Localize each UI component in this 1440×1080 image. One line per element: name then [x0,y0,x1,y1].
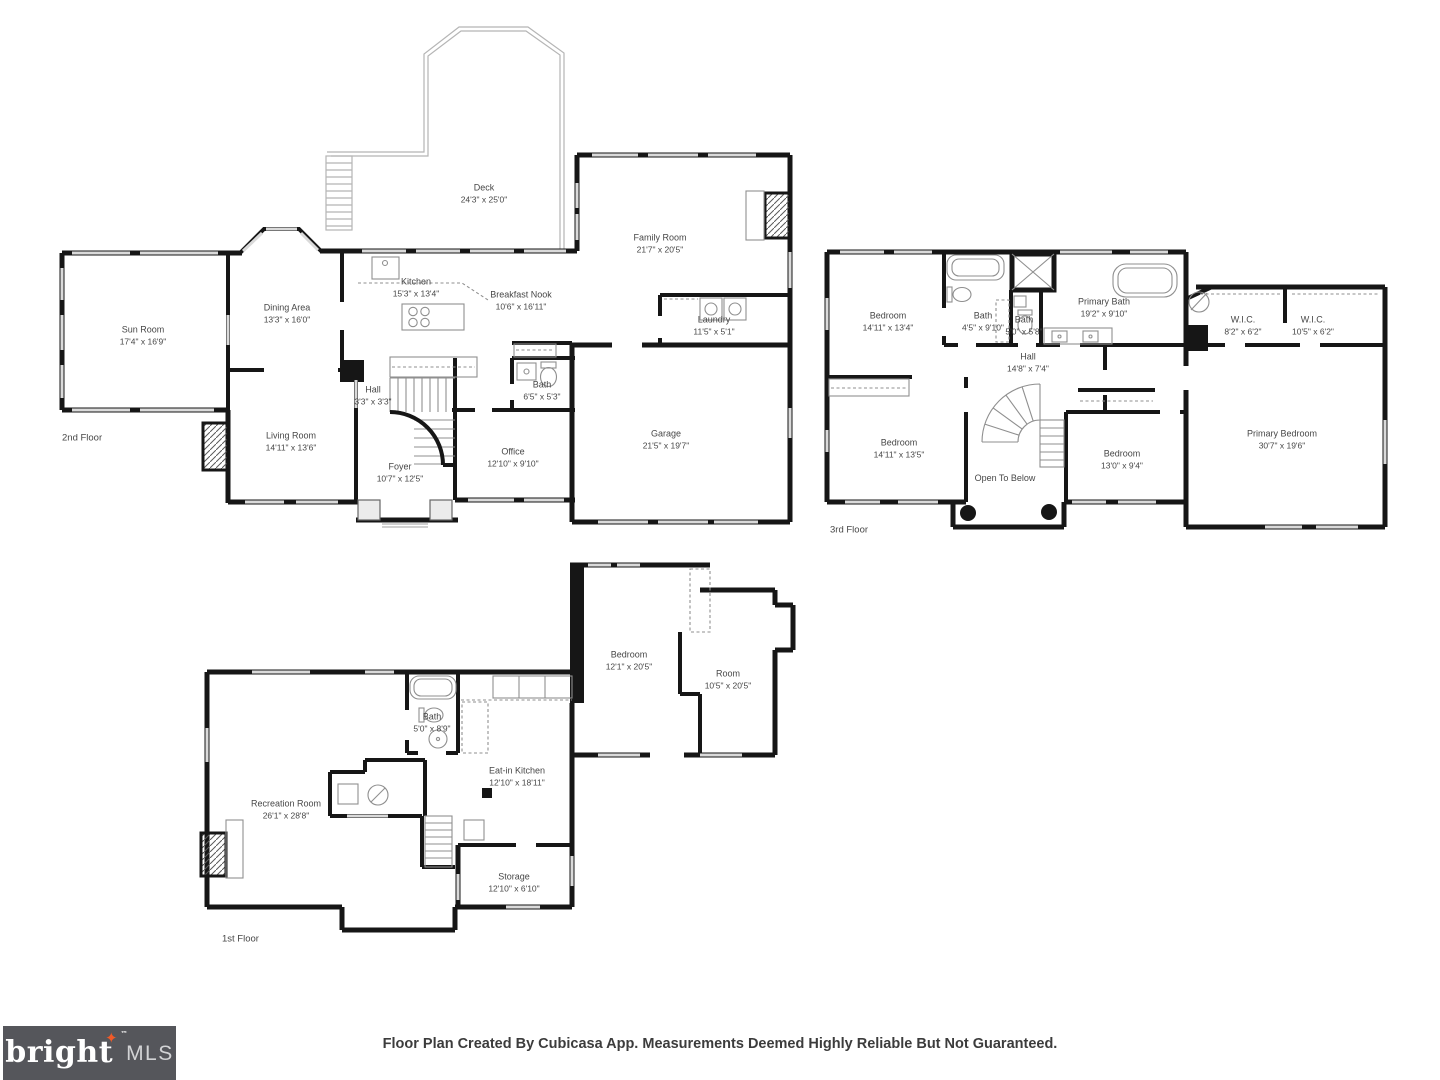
room-dimensions: 17'4" x 16'9" [120,336,167,347]
room-label: Bath5'0" x 5'8" [1005,314,1042,337]
room-name: Bedroom [863,310,914,322]
room-dimensions: 11'5" x 5'1" [693,326,734,337]
room-name: Bath [523,379,560,391]
room-name: Bath [1005,314,1042,326]
room-name: Garage [643,428,690,440]
room-dimensions: 5'0" x 8'9" [413,723,450,734]
room-label: W.I.C.10'5" x 6'2" [1292,314,1334,337]
room-labels-layer: Sun Room17'4" x 16'9"Dining Area13'3" x … [0,0,1440,1080]
room-dimensions: 21'7" x 20'5" [633,244,686,255]
room-label: Bedroom14'11" x 13'4" [863,310,914,333]
room-name: Bedroom [874,437,925,449]
room-label: W.I.C.8'2" x 6'2" [1224,314,1261,337]
room-name: Bath [413,711,450,723]
room-dimensions: 12'10" x 18'11" [489,777,545,788]
room-name: Breakfast Nook [490,289,552,301]
room-label: Recreation Room26'1" x 28'8" [251,798,321,821]
room-label: Dining Area13'3" x 16'0" [264,302,311,325]
room-label: Bedroom12'1" x 20'5" [606,649,653,672]
room-name: Family Room [633,232,686,244]
floor-caption-first-floor: 1st Floor [222,934,259,945]
room-dimensions: 6'5" x 5'3" [523,391,560,402]
room-label: Breakfast Nook10'6" x 16'11" [490,289,552,312]
room-name: Sun Room [120,324,167,336]
room-label: Bath4'5" x 9'10" [962,310,1004,333]
room-dimensions: 14'11" x 13'5" [874,449,925,460]
room-dimensions: 19'2" x 9'10" [1078,308,1130,319]
room-label: Laundry11'5" x 5'1" [693,314,734,337]
room-name: Foyer [377,461,424,473]
room-name: Primary Bath [1078,296,1130,308]
room-label: Storage12'10" x 6'10" [488,871,539,894]
room-dimensions: 26'1" x 28'8" [251,810,321,821]
room-label: Primary Bedroom30'7" x 19'6" [1247,428,1317,451]
room-name: Office [487,446,538,458]
room-name: Recreation Room [251,798,321,810]
room-name: Primary Bedroom [1247,428,1317,440]
room-label: Bedroom14'11" x 13'5" [874,437,925,460]
room-name: W.I.C. [1292,314,1334,326]
room-name: W.I.C. [1224,314,1261,326]
room-name: Kitchen [393,276,440,288]
room-name: Living Room [266,430,317,442]
room-label: Bath5'0" x 8'9" [413,711,450,734]
floor-caption-third-floor: 3rd Floor [830,525,868,536]
room-dimensions: 21'5" x 19'7" [643,440,690,451]
room-name: Eat-in Kitchen [489,765,545,777]
room-label: Sun Room17'4" x 16'9" [120,324,167,347]
room-label: Eat-in Kitchen12'10" x 18'11" [489,765,545,788]
room-name: Bedroom [606,649,653,661]
room-name: Storage [488,871,539,883]
room-name: Room [705,668,752,680]
room-label: Garage21'5" x 19'7" [643,428,690,451]
room-name: Deck [461,182,508,194]
room-dimensions: 10'7" x 12'5" [377,473,424,484]
room-dimensions: 10'5" x 20'5" [705,680,752,691]
room-dimensions: 12'10" x 6'10" [488,883,539,894]
room-dimensions: 5'0" x 5'8" [1005,326,1042,337]
room-dimensions: 13'0" x 9'4" [1101,460,1143,471]
room-name: Hall [354,384,391,396]
room-label: Kitchen15'3" x 13'4" [393,276,440,299]
room-label: Living Room14'11" x 13'6" [266,430,317,453]
room-name: Dining Area [264,302,311,314]
room-dimensions: 14'8" x 7'4" [1007,363,1049,374]
room-dimensions: 13'3" x 16'0" [264,314,311,325]
bright-mls-logo: bright✦™ MLS [3,1026,176,1080]
room-label: Bath6'5" x 5'3" [523,379,560,402]
room-name: Bath [962,310,1004,322]
room-label: Office12'10" x 9'10" [487,446,538,469]
room-dimensions: 3'3" x 3'3" [354,396,391,407]
room-dimensions: 10'5" x 6'2" [1292,326,1334,337]
floor-caption-second-floor: 2nd Floor [62,433,102,444]
room-dimensions: 15'3" x 13'4" [393,288,440,299]
room-name: Hall [1007,351,1049,363]
room-label: Bedroom13'0" x 9'4" [1101,448,1143,471]
room-dimensions: 10'6" x 16'11" [490,301,552,312]
room-label: Room10'5" x 20'5" [705,668,752,691]
floorplan-page: Sun Room17'4" x 16'9"Dining Area13'3" x … [0,0,1440,1080]
disclaimer-text: Floor Plan Created By Cubicasa App. Meas… [0,1036,1440,1052]
room-label: Primary Bath19'2" x 9'10" [1078,296,1130,319]
room-label: Hall14'8" x 7'4" [1007,351,1049,374]
room-label: Family Room21'7" x 20'5" [633,232,686,255]
room-dimensions: 8'2" x 6'2" [1224,326,1261,337]
room-name: Open To Below [975,473,1036,485]
room-name: Bedroom [1101,448,1143,460]
room-label: Hall3'3" x 3'3" [354,384,391,407]
room-dimensions: 14'11" x 13'4" [863,322,914,333]
room-dimensions: 12'1" x 20'5" [606,661,653,672]
room-name: Laundry [693,314,734,326]
room-dimensions: 30'7" x 19'6" [1247,440,1317,451]
room-dimensions: 4'5" x 9'10" [962,322,1004,333]
room-label: Deck24'3" x 25'0" [461,182,508,205]
room-dimensions: 24'3" x 25'0" [461,194,508,205]
room-dimensions: 14'11" x 13'6" [266,442,317,453]
room-label: Open To Below [975,473,1036,485]
room-label: Foyer10'7" x 12'5" [377,461,424,484]
room-dimensions: 12'10" x 9'10" [487,458,538,469]
